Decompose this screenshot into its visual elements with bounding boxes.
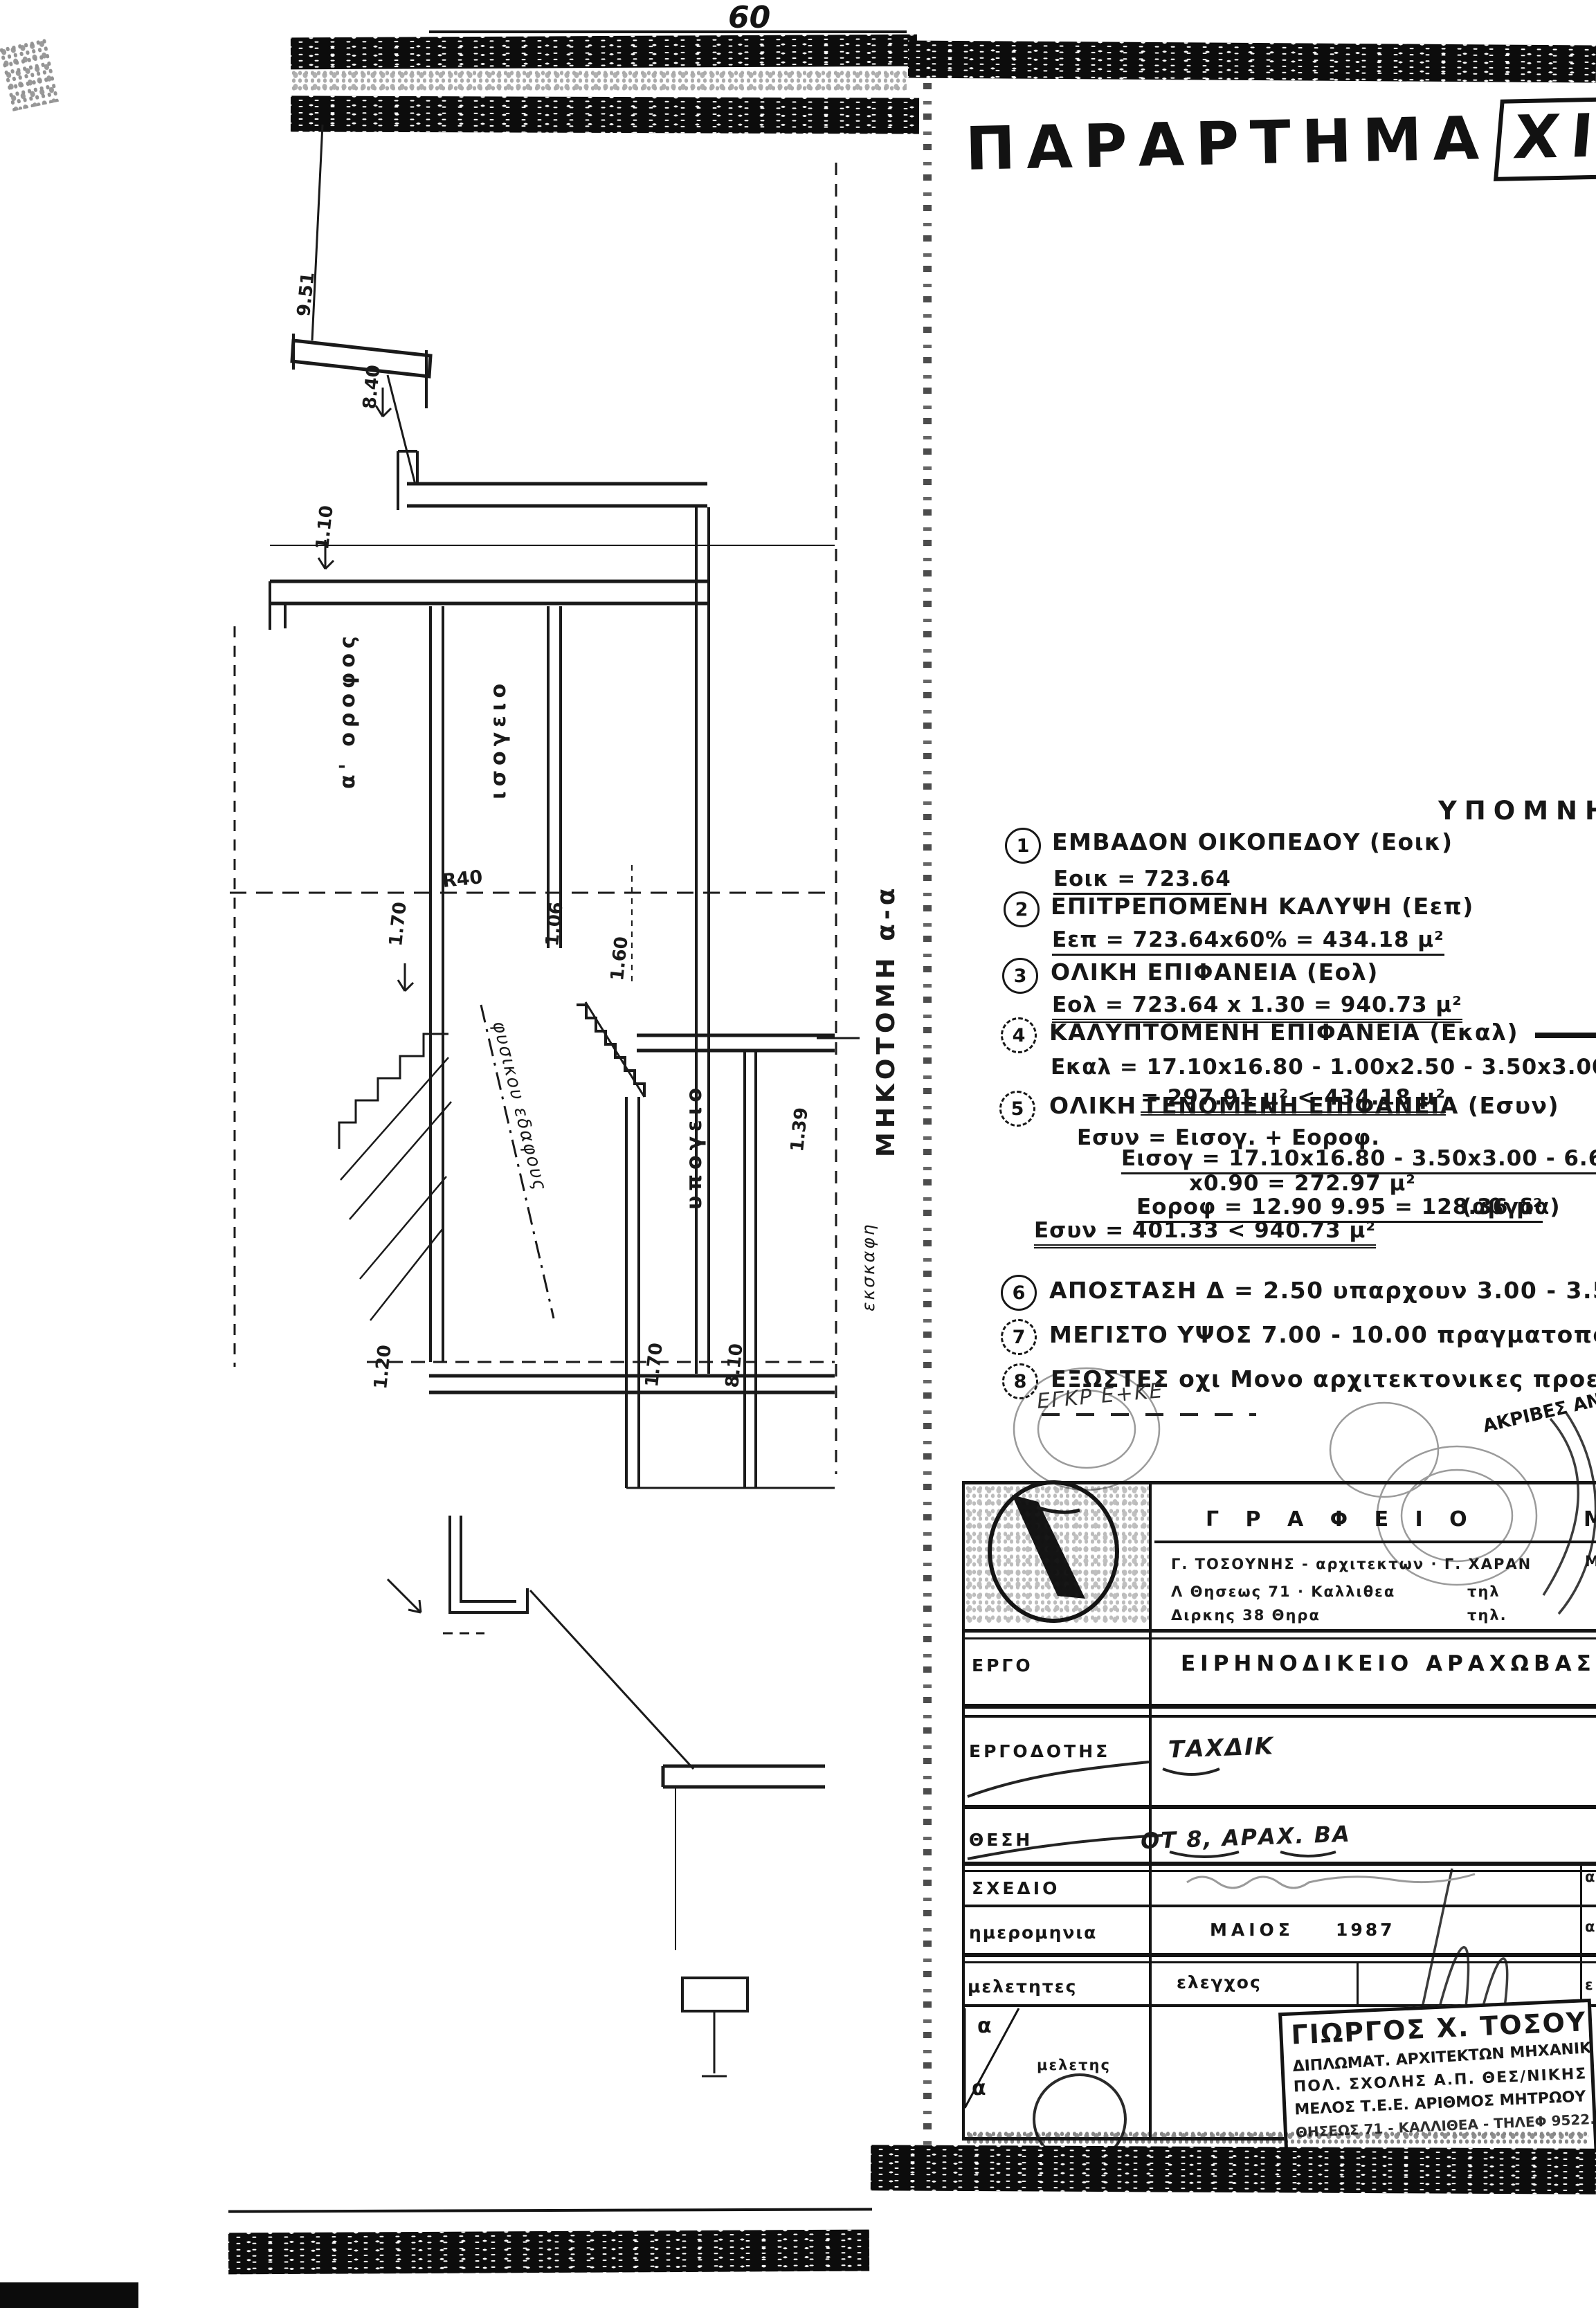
tb-row-ergodotis-label: ΕΡΓΟΔΟΤΗΣ <box>969 1741 1110 1761</box>
legend-item-4-title: ΚΑΛΥΠΤΟΜΕΝΗ ΕΠΙΦΑΝΕΙΑ (Εκαλ) <box>1049 1019 1518 1046</box>
legend-item-1-title: ΕΜΒΑΔΟΝ ΟΙΚΟΠΕΔΟΥ (Εοικ) <box>1052 828 1453 855</box>
edge-letter-1: Μ <box>1585 1553 1596 1570</box>
tb-office-addr2: Διρκης 38 Θηρα <box>1171 1607 1321 1624</box>
level-label: R40 <box>441 866 483 892</box>
legend-item-7-title: ΜΕΓΙΣΤΟ ΥΨΟΣ 7.00 - 10.00 πραγματοποιουμ <box>1049 1321 1596 1348</box>
tb-row-ergodotis-value: ΤΑΧΔΙΚ <box>1168 1732 1274 1763</box>
approval-dashes <box>1042 1413 1256 1416</box>
architect-stamp: ΓΙΩΡΓΟΣ Χ. ΤΟΣΟΥΝΗΣ ΔΙΠΛΩΜΑΤ. ΑΡΧΙΤΕΚΤΩΝ… <box>1278 1999 1596 2170</box>
tb-row-date-month: ΜΑΙΟΣ <box>1210 1920 1294 1940</box>
tb-office-label-cut: Μ <box>1584 1507 1596 1532</box>
tb-office-tel1: τηλ <box>1467 1583 1500 1600</box>
legend-num-6: 6 <box>1001 1275 1037 1311</box>
legend-item-5-line5: Εσυν = 401.33 < 940.73 μ² <box>1034 1218 1376 1248</box>
tb-col-divider <box>1149 1481 1152 2140</box>
floor-label-ground: ισογειο <box>487 679 511 799</box>
legend-item-5-note: (αβγδα) <box>1462 1194 1561 1219</box>
tb-office-label: Γ Ρ Α Φ Ε Ι Ο <box>1206 1507 1477 1532</box>
bottom-right-noise <box>965 2130 1588 2144</box>
legend-num-1: 1 <box>1005 828 1041 864</box>
dim-9-51: 9.51 <box>293 271 319 318</box>
legend-item-5-line2: Εισογ = 17.10x16.80 - 3.50x3.00 - 6.60x1… <box>1121 1146 1596 1174</box>
dim-1-60: 1.60 <box>607 936 633 982</box>
legend-item-2-line: Εεπ = 723.64x60% = 434.18 μ² <box>1052 927 1444 956</box>
dim-1-70a: 1.70 <box>386 901 411 947</box>
tb-row-date-year: 1987 <box>1336 1920 1395 1940</box>
legend-heading: ΥΠΟΜΝΗΜΑ <box>1438 796 1596 826</box>
floor-label-upper: α' οροφος <box>336 631 360 789</box>
section-title: ΜΗΚΟΤΟΜΗ α-α <box>872 884 900 1157</box>
tb-row-ergo-label: ΕΡΓΟ <box>972 1655 1033 1675</box>
legend-num-4: 4 <box>1001 1017 1037 1053</box>
legend-item-2-title: ΕΠΙΤΡΕΠΟΜΕΝΗ ΚΑΛΥΨΗ (Εεπ) <box>1051 893 1474 920</box>
legend-num-8: 8 <box>1002 1363 1038 1399</box>
tb-office-tel2: τηλ. <box>1467 1607 1507 1624</box>
tb-row-meletites-label: μελετητες <box>968 1977 1078 1997</box>
tb-row-date-label: ημερομηνια <box>969 1923 1097 1943</box>
dim-1-39: 1.39 <box>787 1107 813 1153</box>
schedio-scribble <box>1187 1874 1475 1888</box>
triangle-letter-bottom: α <box>972 2076 986 2100</box>
dim-1-20: 1.20 <box>370 1344 396 1390</box>
study-label: μελετης <box>1037 2057 1111 2073</box>
edge-letter-3: α <box>1585 1918 1596 1935</box>
legend-item-1-line: Εοικ = 723.64 <box>1053 866 1231 895</box>
triangle-letter-top: α <box>977 2014 992 2038</box>
legend-item-3-title: ΟΛΙΚΗ ΕΠΙΦΑΝΕΙΑ (Εολ) <box>1051 958 1379 985</box>
bottom-corner-blob <box>0 2282 138 2308</box>
tb-row-sxedio-label: ΣΧΕΔΙΟ <box>972 1878 1060 1898</box>
dim-1-10: 1.10 <box>312 505 338 551</box>
dim-8-40: 8.40 <box>359 364 385 410</box>
tb-row-elegxos-label: ελεγχος <box>1177 1972 1262 1992</box>
tb-row-thesi-label: ΘΕΣΗ <box>969 1830 1033 1850</box>
edge-letter-2: α <box>1585 1869 1596 1885</box>
tb-logo-cell-texture <box>965 1484 1149 1623</box>
excavation-label: εκσκαφη <box>858 1222 878 1311</box>
tb-office-names: Γ. ΤΟΣΟΥΝΗΣ - αρχιτεκτων · Γ. ΧΑΡΑΝ <box>1171 1556 1532 1572</box>
ground-label: φυσικου εδαφους <box>488 1019 550 1193</box>
floor-label-basement: υπογειο <box>682 1083 707 1210</box>
dim-1-70b: 1.70 <box>642 1342 667 1388</box>
scan-bar-bottom-left <box>228 2230 869 2275</box>
tb-row-ergo-value: ΕΙΡΗΝΟΔΙΚΕΙΟ ΑΡΑΧΩΒΑΣ <box>1181 1651 1596 1676</box>
legend-item-4-dash <box>1535 1033 1596 1038</box>
legend-num-5: 5 <box>999 1091 1035 1127</box>
legend-item-6-title: ΑΠΟΣΤΑΣΗ Δ = 2.50 υπαρχουν 3.00 - 3.50 -… <box>1049 1277 1596 1304</box>
legend-num-2: 2 <box>1004 891 1040 927</box>
dim-1-06: 1.06 <box>542 901 568 947</box>
scan-bar-bottom-right <box>871 2145 1596 2194</box>
legend-num-7: 7 <box>1001 1319 1037 1355</box>
edge-letter-4: ε <box>1585 1977 1595 1993</box>
legend-item-4-line1: Εκαλ = 17.10x16.80 - 1.00x2.50 - 3.50x3.… <box>1051 1055 1596 1080</box>
legend-item-5-title: ΟΛΙΚΗ ΓΕΝΟΜΕΝΗ ΕΠΙΦΑΝΕΙΑ (Εσυν) <box>1049 1092 1559 1119</box>
scanned-sheet: 60 ΠΑΡΑΡΤΗΜΑXI <box>0 0 1596 2308</box>
tb-office-addr1: Λ Θησεως 71 · Καλλιθεα <box>1171 1583 1395 1600</box>
legend-item-5-line3: x0.90 = 272.97 μ² <box>1189 1171 1416 1196</box>
legend-num-3: 3 <box>1002 958 1038 994</box>
